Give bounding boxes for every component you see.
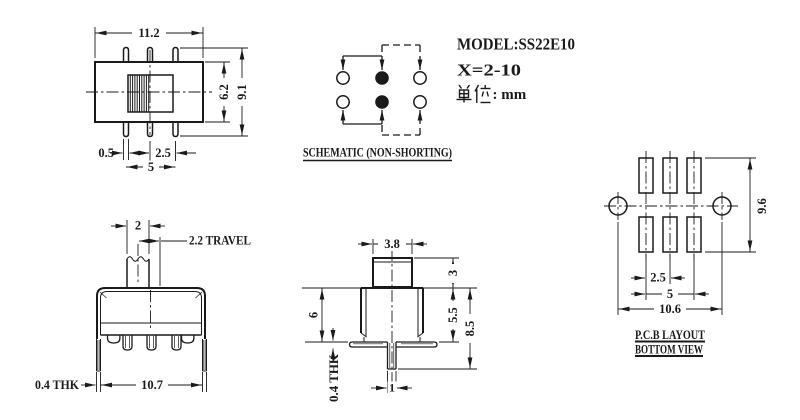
pcb-caption-line1: P.C.B LAYOUT [635, 328, 706, 342]
dim-label-9-1: 9.1 [235, 84, 249, 100]
front-bottom-pin-3 [173, 122, 178, 137]
dim-label-2-5: 2.5 [155, 146, 171, 160]
base-notch-left [108, 335, 120, 343]
front-view: 11.2 6.2 9.1 0.5 [86, 26, 249, 174]
pcb-layout-view: 9.6 2.5 5 10.6 P.C [604, 151, 769, 357]
mounting-leg-left [97, 339, 101, 371]
dim-front-pins: 0.5 2.5 5 [98, 139, 196, 174]
dim-end-bracket-height: 6 [305, 288, 348, 342]
dim-label-pcb-2-5: 2.5 [650, 271, 666, 285]
dim-label-11-2: 11.2 [138, 26, 159, 40]
dim-end-right: 3 5.5 8.5 [398, 258, 477, 369]
switch-body-side [97, 288, 205, 339]
datasheet-drawing: 11.2 6.2 9.1 0.5 [0, 0, 800, 420]
schematic-caption: SCHEMATIC (NON-SHORTING) [303, 146, 452, 160]
drawing-canvas: 11.2 6.2 9.1 0.5 [0, 0, 800, 420]
dim-label-1: 1 [389, 381, 395, 395]
dim-end-knob-width: 3.8 [358, 237, 427, 254]
dim-label-6: 6 [307, 312, 321, 318]
dim-label-travel: 2.2 TRAVEL [189, 234, 251, 248]
dim-end-pin-width: 1 [371, 371, 412, 395]
dim-label-2: 2 [135, 219, 141, 233]
slider-knob-hatched [130, 75, 148, 112]
dim-label-6-2: 6.2 [217, 84, 231, 100]
side-view: 2 2.2 TRAVEL 0.4 THK 10.7 [35, 219, 251, 393]
pcb-caption-line2: BOTTOM VIEW [635, 343, 703, 357]
terminal-open-bottom-left [337, 96, 349, 108]
dim-side-bottom: 0.4 THK 10.7 [35, 372, 207, 392]
dim-label-9-6: 9.6 [755, 198, 769, 214]
dim-label-8-5: 8.5 [463, 321, 477, 337]
dim-label-3-8: 3.8 [384, 237, 400, 251]
front-bottom-pin-1 [124, 122, 129, 137]
mounting-leg-right [203, 339, 207, 371]
terminal-open-bottom-right [414, 96, 426, 108]
cjk-unit-label-glyph [457, 85, 491, 103]
terminal-open-top-left [337, 72, 349, 84]
terminal-open-top-right [414, 72, 426, 84]
terminal-common-top [375, 71, 389, 85]
terminal-common-bottom [375, 95, 389, 109]
variant-range: X=2-10 [457, 61, 521, 80]
dim-label-10-7: 10.7 [141, 378, 163, 392]
dim-end-thickness: 0.4 THK [327, 328, 341, 402]
dim-label-10-6: 10.6 [659, 302, 681, 316]
unit-value: : mm [493, 87, 527, 103]
front-top-pin-1 [124, 48, 129, 63]
schematic-view: SCHEMATIC (NON-SHORTING) [303, 45, 452, 161]
dim-label-5: 5 [148, 160, 154, 174]
dim-pcb-row-span: 9.6 [705, 158, 769, 252]
dim-label-pcb-5: 5 [667, 287, 673, 301]
dim-label-thk-side: 0.4 THK [35, 378, 79, 392]
dim-label-3: 3 [446, 270, 460, 276]
mounting-foot-left [350, 342, 388, 347]
mounting-foot-right [396, 342, 437, 347]
dim-label-thk-end: 0.4 THK [327, 354, 341, 402]
front-top-pin-3 [173, 48, 178, 63]
dim-label-5-5: 5.5 [446, 307, 460, 323]
dim-front-width: 11.2 [95, 26, 203, 58]
dim-side-travel: 2.2 TRAVEL [139, 234, 251, 287]
base-notch-right [182, 335, 194, 343]
end-view: 3.8 6 0.4 THK 1 [302, 237, 477, 402]
model-number: MODEL:SS22E10 [457, 35, 575, 54]
dim-front-slot-height: 6.2 [205, 62, 231, 122]
title-block: MODEL:SS22E10 X=2-10 : mm [457, 35, 576, 104]
side-pins [123, 335, 181, 350]
